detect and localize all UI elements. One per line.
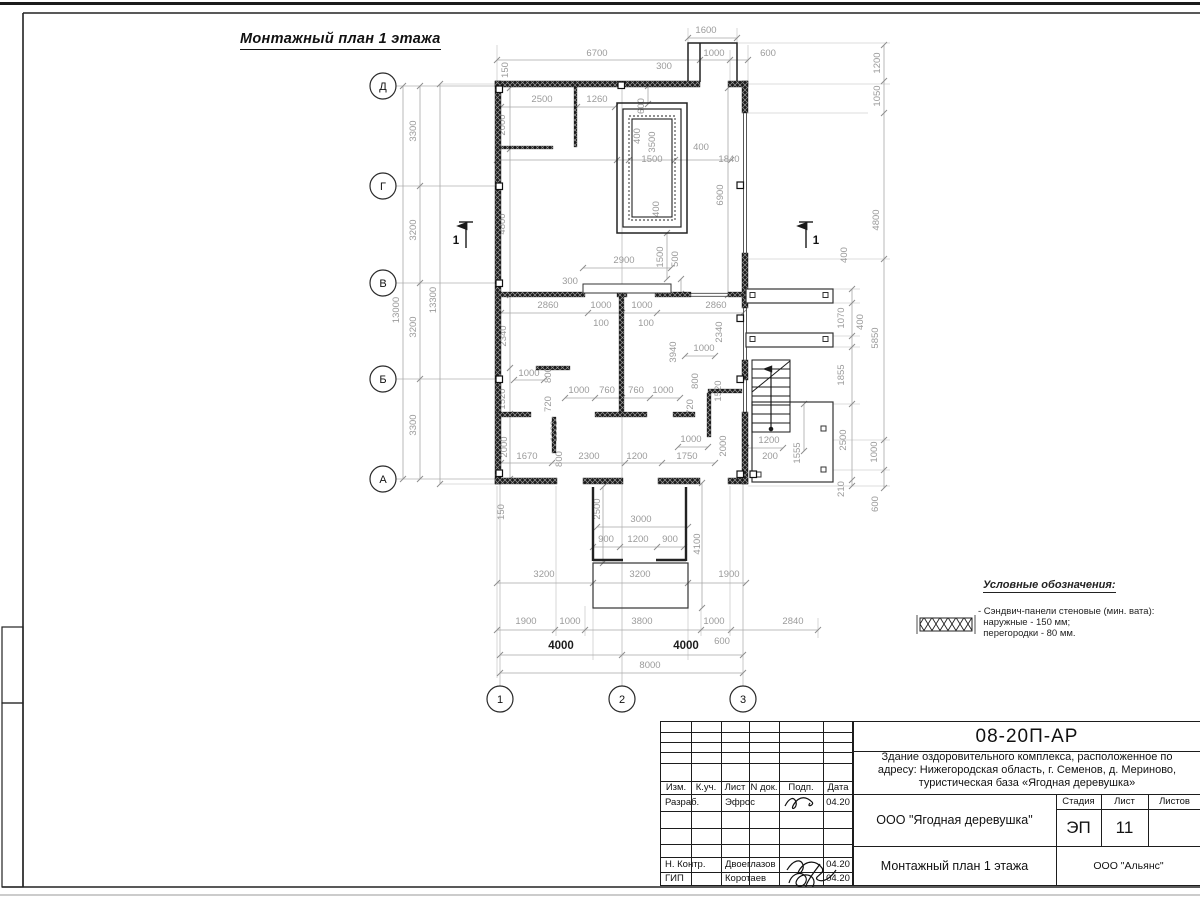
dimension-label: 1855 [836, 364, 847, 385]
dimension-label: 3800 [631, 616, 652, 627]
tb-col-podp: Подп. [779, 781, 823, 794]
axis-label: А [379, 474, 387, 486]
plan-title: Монтажный план 1 этажа [240, 31, 441, 50]
dimension-label: 600 [714, 636, 730, 647]
dimension-label: 2340 [714, 321, 725, 342]
dimension-label: 3000 [630, 514, 651, 525]
dimension-label: 2000 [718, 435, 729, 456]
dimension-label: 400 [632, 128, 643, 144]
dimension-label: 4100 [692, 533, 703, 554]
tb-name-razrab: Эфрос [721, 794, 783, 811]
dimension-label: 1000 [703, 616, 724, 627]
contractor-name: ООО "Альянс" [1056, 846, 1200, 885]
dimension-label: 3300 [408, 120, 419, 141]
column-markers [496, 82, 757, 478]
column-marker [496, 183, 503, 190]
tb-col-kuch: К.уч. [691, 781, 721, 794]
dimension-label: 2840 [782, 616, 803, 627]
entrance-porch [593, 487, 688, 608]
axis-label: 2 [619, 694, 625, 706]
dimension-label: 150 [500, 62, 511, 78]
dimension-label: 400 [651, 201, 662, 217]
dimension-labels: 1600670010006003001502500126020006004003… [391, 25, 883, 671]
tb-name-nkontr: Двоеглазов [721, 857, 783, 872]
dimension-label: 1000 [559, 616, 580, 627]
dimension-label: 600 [760, 48, 776, 59]
drawing-sheet: { "sheet": { "plan_title": "Монтажный пл… [0, 0, 1200, 900]
tb-col-list: Лист [721, 781, 749, 794]
dimension-label: 3200 [533, 569, 554, 580]
tb-date-gip: 04.20 [823, 872, 853, 885]
dimension-label: 6900 [715, 184, 726, 205]
axis-label: 1 [497, 694, 503, 706]
dimension-label: 1900 [718, 569, 739, 580]
axis-label: Д [379, 81, 387, 93]
dimension-label: 3200 [629, 569, 650, 580]
dimension-label: 300 [656, 61, 672, 72]
dimension-label: 3500 [647, 131, 658, 152]
dimension-label: 1000 [869, 441, 880, 462]
sheet-label: Лист [1101, 794, 1148, 809]
column-marker [496, 470, 503, 477]
interior-walls [497, 84, 744, 453]
column-marker [737, 315, 744, 322]
tb-role-razrab: Разраб. [661, 794, 725, 811]
sheet-number: 11 [1101, 809, 1148, 846]
landing-step [583, 284, 671, 293]
dimension-label: 900 [662, 534, 678, 545]
section-label: 1 [453, 235, 460, 247]
dimension-label: 210 [836, 481, 847, 497]
stage-label: Стадия [1056, 794, 1101, 809]
column-marker [750, 471, 757, 478]
tb-col-izm: Изм. [661, 781, 691, 794]
dimension-label: 2860 [537, 300, 558, 311]
project-line-3: туристическая база «Ягодная деревушка» [853, 777, 1200, 791]
dimension-label: 3300 [408, 414, 419, 435]
dimension-label: 300 [562, 276, 578, 287]
column-marker [496, 376, 503, 383]
dimension-label: 1000 [652, 385, 673, 396]
dimension-label: 1000 [693, 343, 714, 354]
dimension-label: 2900 [613, 255, 634, 266]
signature-razrab [785, 798, 813, 809]
dimension-label: 1670 [516, 451, 537, 462]
legend-line-3: перегородки - 80 мм. [983, 628, 1075, 639]
dimension-label: 3940 [668, 341, 679, 362]
dimension-label: 720 [543, 396, 554, 412]
dimension-label: 2500 [531, 94, 552, 105]
stage-value: ЭП [1056, 809, 1101, 846]
dimension-label: 1200 [758, 435, 779, 446]
sheets-label: Листов [1148, 794, 1200, 809]
dimension-label: 2500 [838, 429, 849, 450]
column-marker [737, 182, 744, 189]
dimension-label: 800 [554, 451, 565, 467]
signature-gip [789, 864, 820, 887]
column-marker [737, 471, 744, 478]
column-marker [496, 280, 503, 287]
dimension-label: 200 [762, 451, 778, 462]
dimension-label: 600 [870, 496, 881, 512]
dimension-label: 1500 [655, 246, 666, 267]
dimension-label: 150 [496, 504, 507, 520]
dimension-label: 760 [599, 385, 615, 396]
org-name: ООО "Ягодная деревушка" [853, 794, 1056, 846]
dimension-label: 6700 [586, 48, 607, 59]
dimension-label: 4000 [673, 640, 699, 652]
dimension-label: 1000 [680, 434, 701, 445]
dimension-label: 400 [839, 247, 850, 263]
dimension-label: 1555 [792, 442, 803, 463]
column-marker [618, 82, 625, 89]
dimension-label: 400 [855, 314, 866, 330]
dimension-label: 1000 [568, 385, 589, 396]
dimension-label: 400 [693, 142, 709, 153]
tb-date-razrab: 04.20 [823, 794, 853, 811]
dimension-label: 1000 [631, 300, 652, 311]
section-label: 1 [813, 235, 820, 247]
legend-line-1: - Сэндвич-панели стеновые (мин. вата): [978, 606, 1154, 617]
column-marker [496, 86, 503, 93]
legend-item: - Сэндвич-панели стеновые (мин. вата): н… [978, 606, 1154, 639]
dimension-label: 8000 [639, 660, 660, 671]
staircase [752, 360, 790, 432]
dimension-label: 3200 [408, 316, 419, 337]
title-block: Изм. К.уч. Лист N док. Подп. Дата Разраб… [660, 721, 1200, 886]
axis-label: Б [379, 374, 386, 386]
project-line-1: Здание оздоровительного комплекса, распо… [853, 751, 1200, 765]
dimension-label: 5850 [870, 327, 881, 348]
dimension-label: 1260 [586, 94, 607, 105]
dimension-label: 600 [636, 98, 647, 114]
dimension-label: 4800 [871, 209, 882, 230]
dimension-label: 2860 [705, 300, 726, 311]
dimension-label: 1000 [703, 48, 724, 59]
dimension-label: 1500 [641, 154, 662, 165]
side-ramps [746, 289, 833, 347]
dimension-label: 1200 [626, 451, 647, 462]
tb-role-nkontr: Н. Контр. [661, 857, 725, 872]
tb-date-nkontr: 04.20 [823, 857, 853, 872]
axis-label: В [379, 278, 386, 290]
dimension-label: 1840 [718, 154, 739, 165]
dimension-label: 1000 [590, 300, 611, 311]
dimension-label: 100 [638, 318, 654, 329]
dimension-label: 1750 [676, 451, 697, 462]
dimension-label: 1200 [872, 52, 883, 73]
dimension-label: 3200 [408, 219, 419, 240]
dimension-label: 100 [593, 318, 609, 329]
dimension-label: 500 [670, 251, 681, 267]
dimension-label: 760 [628, 385, 644, 396]
dimension-label: 2300 [578, 451, 599, 462]
dimension-label: 1070 [836, 307, 847, 328]
drawing-title: Монтажный план 1 этажа [853, 846, 1056, 885]
dimension-label: 800 [690, 373, 701, 389]
axis-label: Г [380, 181, 386, 193]
dimension-label: 1600 [695, 25, 716, 36]
dimension-label: 1900 [515, 616, 536, 627]
dimension-label: 13000 [391, 297, 402, 323]
legend-line-2: наружные - 150 мм; [983, 617, 1070, 628]
document-number: 08-20П-АР [853, 722, 1200, 751]
dimension-label: 4000 [548, 640, 574, 652]
tb-col-data: Дата [823, 781, 853, 794]
dimension-label: 1050 [872, 85, 883, 106]
tb-col-ndok: N док. [749, 781, 779, 794]
axis-label: 3 [740, 694, 746, 706]
dimension-label: 1200 [627, 534, 648, 545]
column-marker [737, 376, 744, 383]
tb-role-gip: ГИП [661, 872, 725, 885]
legend-symbol [917, 615, 975, 634]
project-line-2: адресу: Нижегородская область, г. Семено… [853, 764, 1200, 778]
legend-title: Условные обозначения: [983, 579, 1116, 593]
dimension-label: 900 [598, 534, 614, 545]
dimension-label: 13300 [428, 287, 439, 313]
tb-name-gip: Коротаев [721, 872, 783, 885]
